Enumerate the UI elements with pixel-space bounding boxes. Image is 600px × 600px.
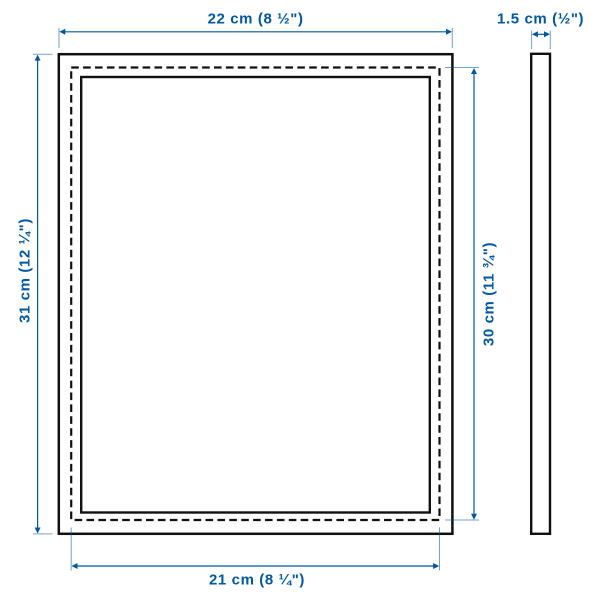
svg-text:1.5 cm (½"): 1.5 cm (½") xyxy=(497,11,584,28)
svg-text:21 cm (8 ¼"): 21 cm (8 ¼") xyxy=(209,572,305,589)
svg-text:30 cm (11 ¾"): 30 cm (11 ¾") xyxy=(481,242,498,346)
svg-text:31 cm (12 ¼"): 31 cm (12 ¼") xyxy=(17,218,34,323)
svg-text:22 cm (8 ½"): 22 cm (8 ½") xyxy=(208,11,304,28)
